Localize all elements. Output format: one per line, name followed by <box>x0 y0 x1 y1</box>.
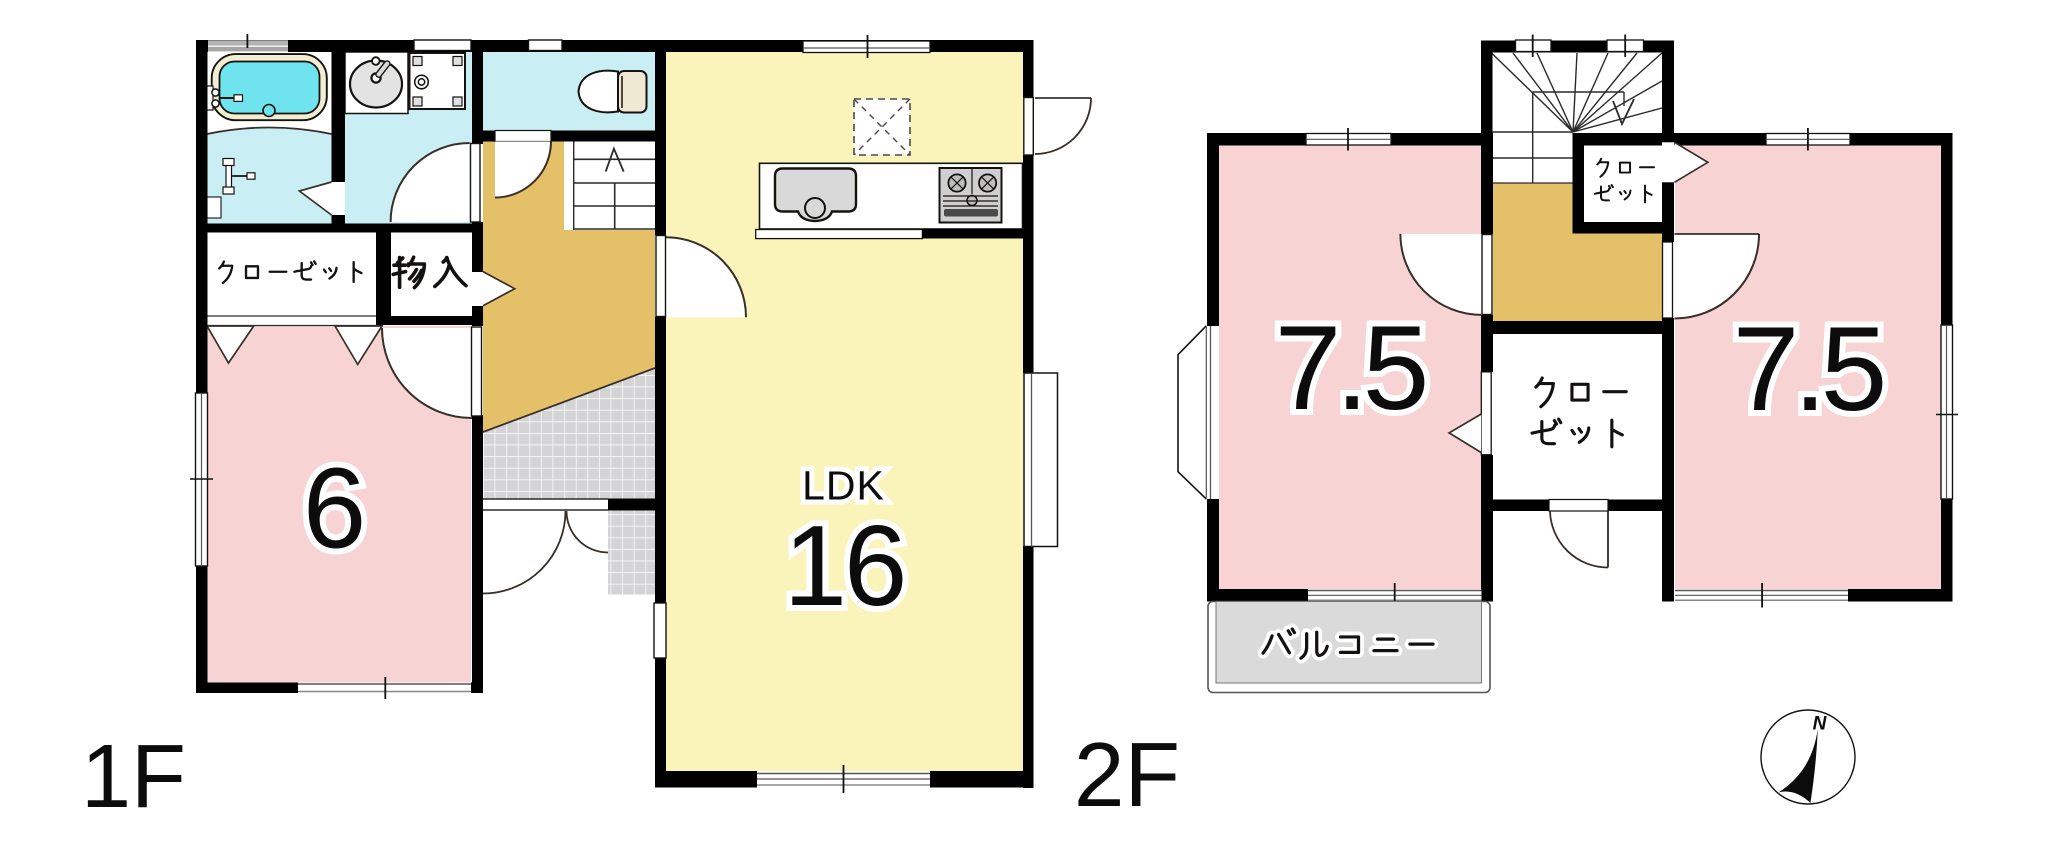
svg-text:N: N <box>1813 714 1828 735</box>
svg-text:2F: 2F <box>1074 725 1180 826</box>
svg-text:7.5: 7.5 <box>1733 302 1883 436</box>
svg-text:16: 16 <box>784 503 905 630</box>
svg-text:1F: 1F <box>81 727 186 827</box>
svg-text:6: 6 <box>303 446 366 573</box>
svg-text:7.5: 7.5 <box>1275 301 1425 435</box>
svg-text:LDK: LDK <box>802 463 885 509</box>
